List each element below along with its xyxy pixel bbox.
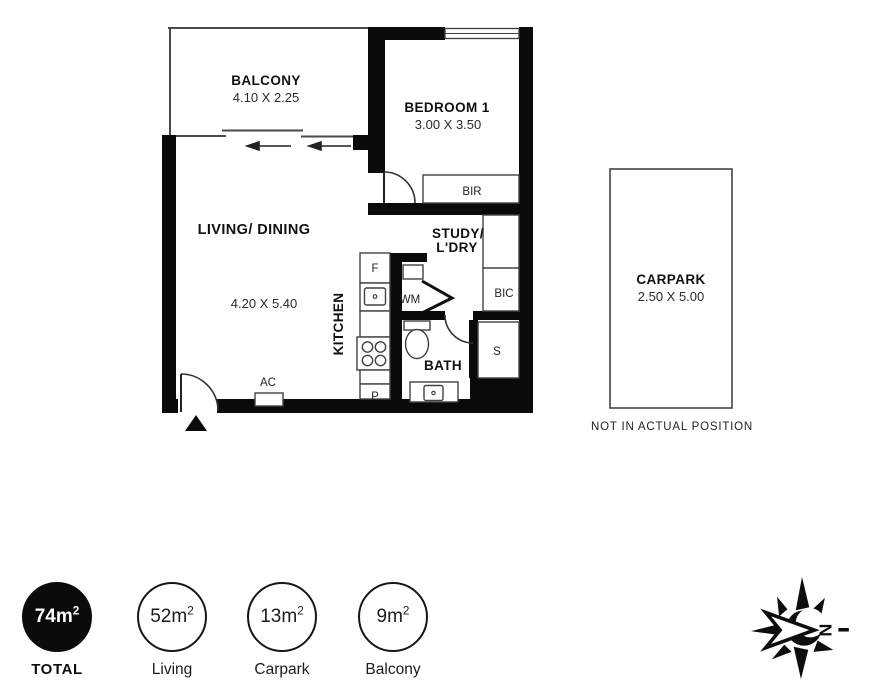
- compass-north-icon: N: [750, 576, 854, 680]
- balcony-label: BALCONY: [231, 73, 301, 88]
- carpark-area-value: 13m: [260, 606, 297, 627]
- shower-label: S: [493, 346, 501, 358]
- legend-circle-balcony: 9m2: [358, 582, 428, 652]
- window-icon: [445, 29, 519, 39]
- bench-box: [360, 370, 390, 384]
- legend-item-carpark: 13m2 Carpark: [227, 582, 337, 679]
- kitchen-label: KITCHEN: [331, 293, 346, 356]
- carpark-note: NOT IN ACTUAL POSITION: [591, 421, 753, 433]
- vanity-icon: [410, 382, 458, 402]
- legend-circle-total: 74m2: [22, 582, 92, 652]
- aircon-box: [255, 393, 283, 406]
- cooktop-icon: [357, 337, 390, 370]
- wall-corner-fill: [470, 378, 533, 411]
- toilet-icon: [404, 321, 430, 359]
- legend-label-total: TOTAL: [2, 661, 112, 678]
- wall-bottom: [162, 399, 178, 413]
- bic-label: BIC: [494, 288, 513, 300]
- legend-label-living: Living: [117, 661, 227, 679]
- legend-circle-living: 52m2: [137, 582, 207, 652]
- fridge-label: F: [371, 263, 378, 275]
- washing-machine-label: WM: [400, 294, 420, 306]
- bath-label: BATH: [424, 358, 462, 373]
- living-label: LIVING/ DINING: [198, 222, 311, 238]
- legend-label-balcony: Balcony: [338, 661, 448, 679]
- balcony-dim: 4.10 X 2.25: [233, 90, 300, 105]
- entry-marker-icon: [185, 415, 207, 431]
- wall-right: [519, 27, 533, 413]
- balcony-area-value: 9m: [377, 606, 403, 627]
- wall-bath-top: [473, 311, 533, 320]
- bedroom-dim: 3.00 X 3.50: [415, 117, 482, 132]
- wall-bedroom-left: [368, 27, 385, 173]
- study-label-line2: L'DRY: [436, 240, 477, 255]
- legend-circle-carpark: 13m2: [247, 582, 317, 652]
- bifold-door-icon: [422, 281, 452, 313]
- bedroom-label: BEDROOM 1: [404, 100, 489, 115]
- wall-stub: [353, 135, 368, 150]
- legend-item-balcony: 9m2 Balcony: [338, 582, 448, 679]
- living-area-value: 52m: [150, 606, 187, 627]
- bath-door-icon: [445, 315, 473, 343]
- legend-item-total: 74m2 TOTAL: [2, 582, 112, 678]
- legend-item-living: 52m2 Living: [117, 582, 227, 679]
- wall-shower-left: [469, 320, 478, 378]
- carpark-dim: 2.50 X 5.00: [638, 289, 705, 304]
- study-label-line1: STUDY/: [432, 226, 484, 241]
- wall-kitchen: [390, 253, 402, 413]
- bedroom-door-icon: [384, 172, 415, 203]
- compass-north-letter: N: [816, 624, 836, 637]
- wall-laundry-stub: [402, 253, 427, 262]
- total-area-value: 74m: [35, 606, 73, 627]
- living-dim: 4.20 X 5.40: [231, 296, 298, 311]
- entry-door-icon: [181, 374, 218, 431]
- slide-arrow-icon: [247, 142, 351, 150]
- bir-label: BIR: [462, 186, 481, 198]
- wall-study-top: [368, 203, 533, 215]
- pantry-label: P: [371, 391, 379, 403]
- aircon-label: AC: [260, 377, 276, 389]
- sink-icon: [365, 288, 386, 305]
- legend-label-carpark: Carpark: [227, 661, 337, 679]
- bench-box: [360, 311, 390, 337]
- laundry-tub-icon: [403, 265, 423, 279]
- floorplan-page: BALCONY 4.10 X 2.25 BEDROOM 1 3.00 X 3.5…: [0, 0, 888, 692]
- carpark-label: CARPARK: [636, 272, 705, 287]
- wall-left: [162, 135, 176, 413]
